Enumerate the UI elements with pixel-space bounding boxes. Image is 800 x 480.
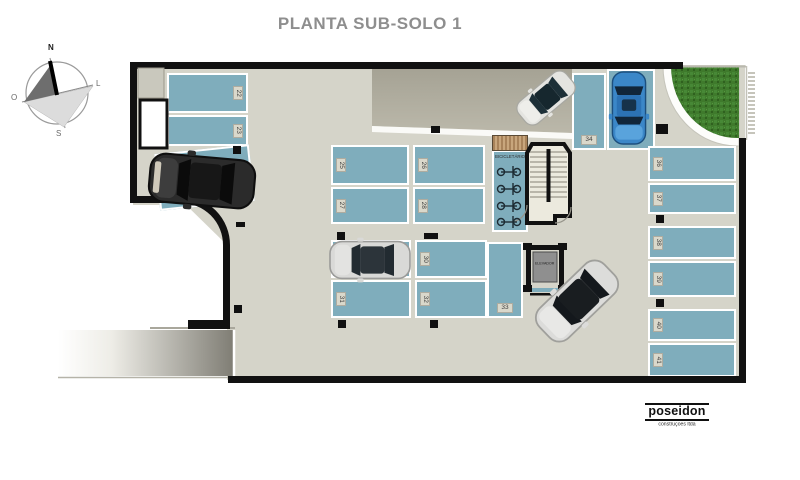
bicycle-icons: [498, 166, 521, 228]
car-black: [147, 147, 257, 215]
floor-plan-page: { "title": "PLANTA SUB-SOLO 1", "compass…: [0, 0, 800, 480]
compass-west: O: [11, 94, 17, 102]
compass-east: L: [96, 80, 100, 88]
car-white-ramp: [511, 65, 581, 131]
builder-logo: poseidon construções ltda: [645, 403, 709, 428]
compass-rose: [22, 58, 93, 128]
compass-north: N: [48, 44, 54, 52]
builder-logo-name: poseidon: [645, 403, 709, 421]
boundary-annotation-marks: [748, 72, 755, 134]
walls: [130, 62, 746, 383]
staircase: [527, 144, 570, 223]
service-rooms: [138, 68, 167, 148]
elevator-label: ELEVADOR: [535, 262, 553, 266]
car-blue: [609, 72, 649, 144]
compass-south: S: [56, 130, 61, 138]
builder-logo-subtitle: construções ltda: [650, 422, 704, 427]
car-silver-parked: [330, 238, 410, 283]
